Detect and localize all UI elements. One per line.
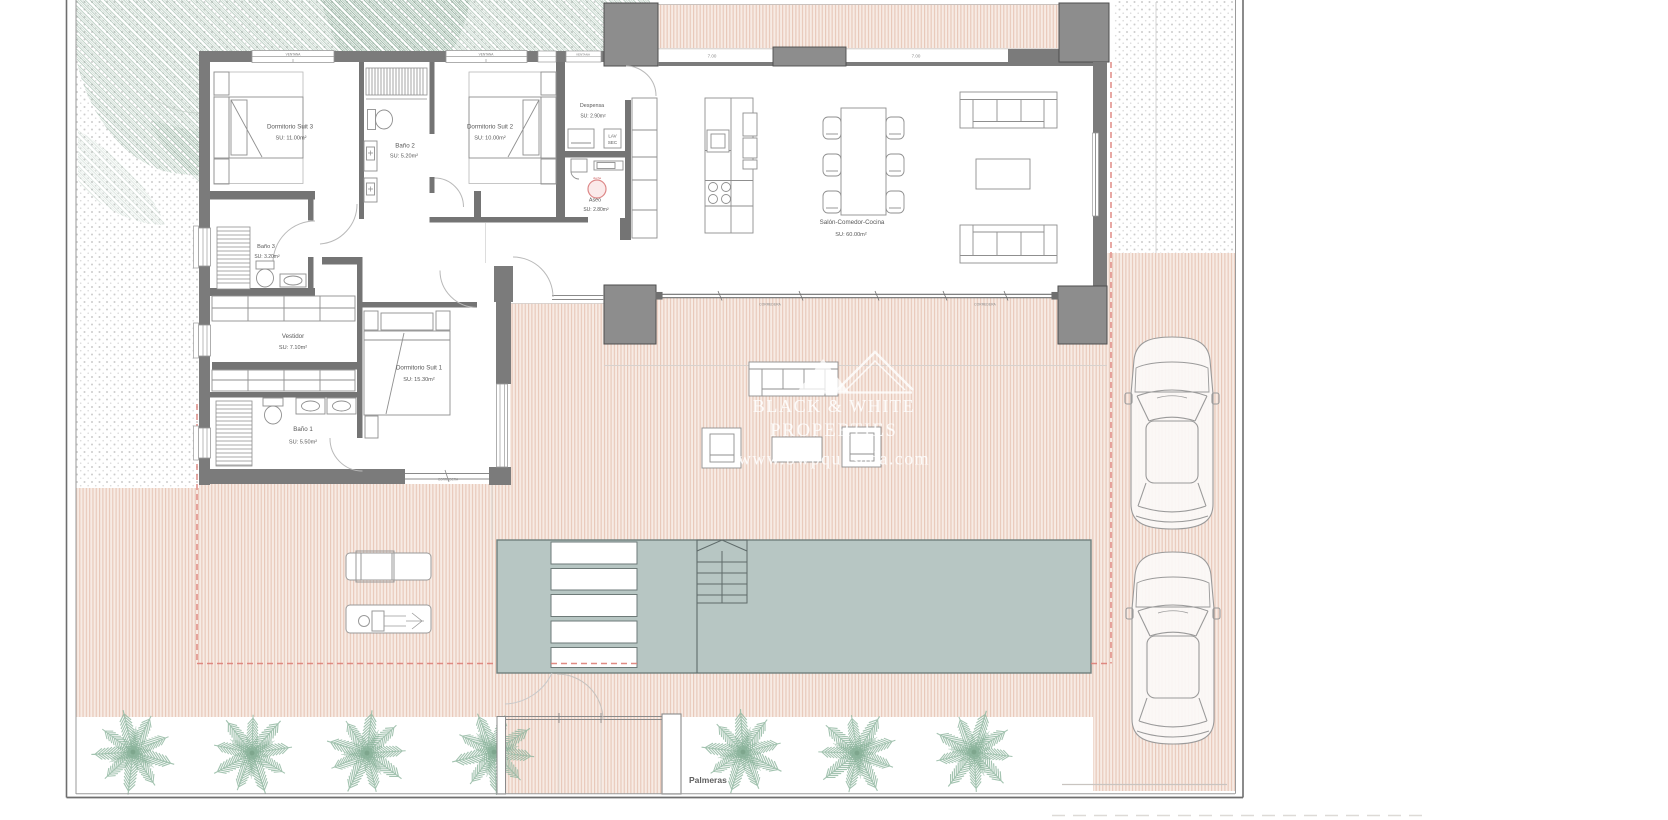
svg-text:VENTANA: VENTANA	[576, 53, 590, 57]
svg-text:7.00: 7.00	[708, 54, 717, 59]
svg-text:Salón-Comedor-Cocina: Salón-Comedor-Cocina	[820, 219, 885, 226]
svg-text:SU: 5.20m²: SU: 5.20m²	[390, 154, 418, 160]
svg-text:SU: 2.80m²: SU: 2.80m²	[583, 207, 609, 213]
svg-text:SEC: SEC	[608, 140, 618, 145]
svg-text:Dormitorio Suit 1: Dormitorio Suit 1	[396, 365, 443, 372]
svg-text:Baño 1: Baño 1	[293, 426, 313, 433]
svg-text:CORREDERA: CORREDERA	[438, 478, 459, 482]
svg-text:SU: 2.90m²: SU: 2.90m²	[580, 114, 606, 120]
svg-text:Dormitorio Suit 2: Dormitorio Suit 2	[467, 124, 514, 131]
svg-text:SU: 10.00m²: SU: 10.00m²	[474, 136, 506, 142]
svg-text:SU: 5.50m²: SU: 5.50m²	[289, 440, 317, 446]
svg-text:SU: 7.10m²: SU: 7.10m²	[279, 345, 307, 351]
svg-text:www.bwpquesada.com: www.bwpquesada.com	[738, 449, 930, 469]
svg-text:SU: 15.30m²: SU: 15.30m²	[403, 377, 435, 383]
svg-text:CORREDERA: CORREDERA	[759, 303, 781, 307]
svg-text:Despensa: Despensa	[580, 103, 604, 109]
svg-text:SU: 60.00m²: SU: 60.00m²	[835, 232, 867, 238]
svg-text:LAV: LAV	[608, 134, 616, 139]
svg-text:PROPERTIES: PROPERTIES	[770, 421, 898, 441]
svg-text:Vestidor: Vestidor	[282, 333, 304, 340]
svg-text:VENTANA: VENTANA	[286, 53, 302, 57]
svg-text:CORREDERA: CORREDERA	[974, 303, 996, 307]
svg-text:Baño 3: Baño 3	[257, 244, 275, 250]
svg-text:Palmeras: Palmeras	[689, 775, 727, 785]
svg-text:Baño 2: Baño 2	[395, 143, 415, 150]
svg-text:BLACK & WHITE: BLACK & WHITE	[753, 396, 915, 416]
svg-text:7.00: 7.00	[912, 54, 921, 59]
svg-text:SU: 11.00m²: SU: 11.00m²	[276, 136, 307, 142]
svg-text:SU: 3.20m²: SU: 3.20m²	[254, 254, 280, 260]
svg-text:Dormitorio Suit 3: Dormitorio Suit 3	[267, 124, 314, 131]
svg-text:Aseo: Aseo	[589, 198, 601, 204]
svg-text:ducha: ducha	[593, 176, 602, 180]
svg-text:VENTANA: VENTANA	[479, 53, 495, 57]
